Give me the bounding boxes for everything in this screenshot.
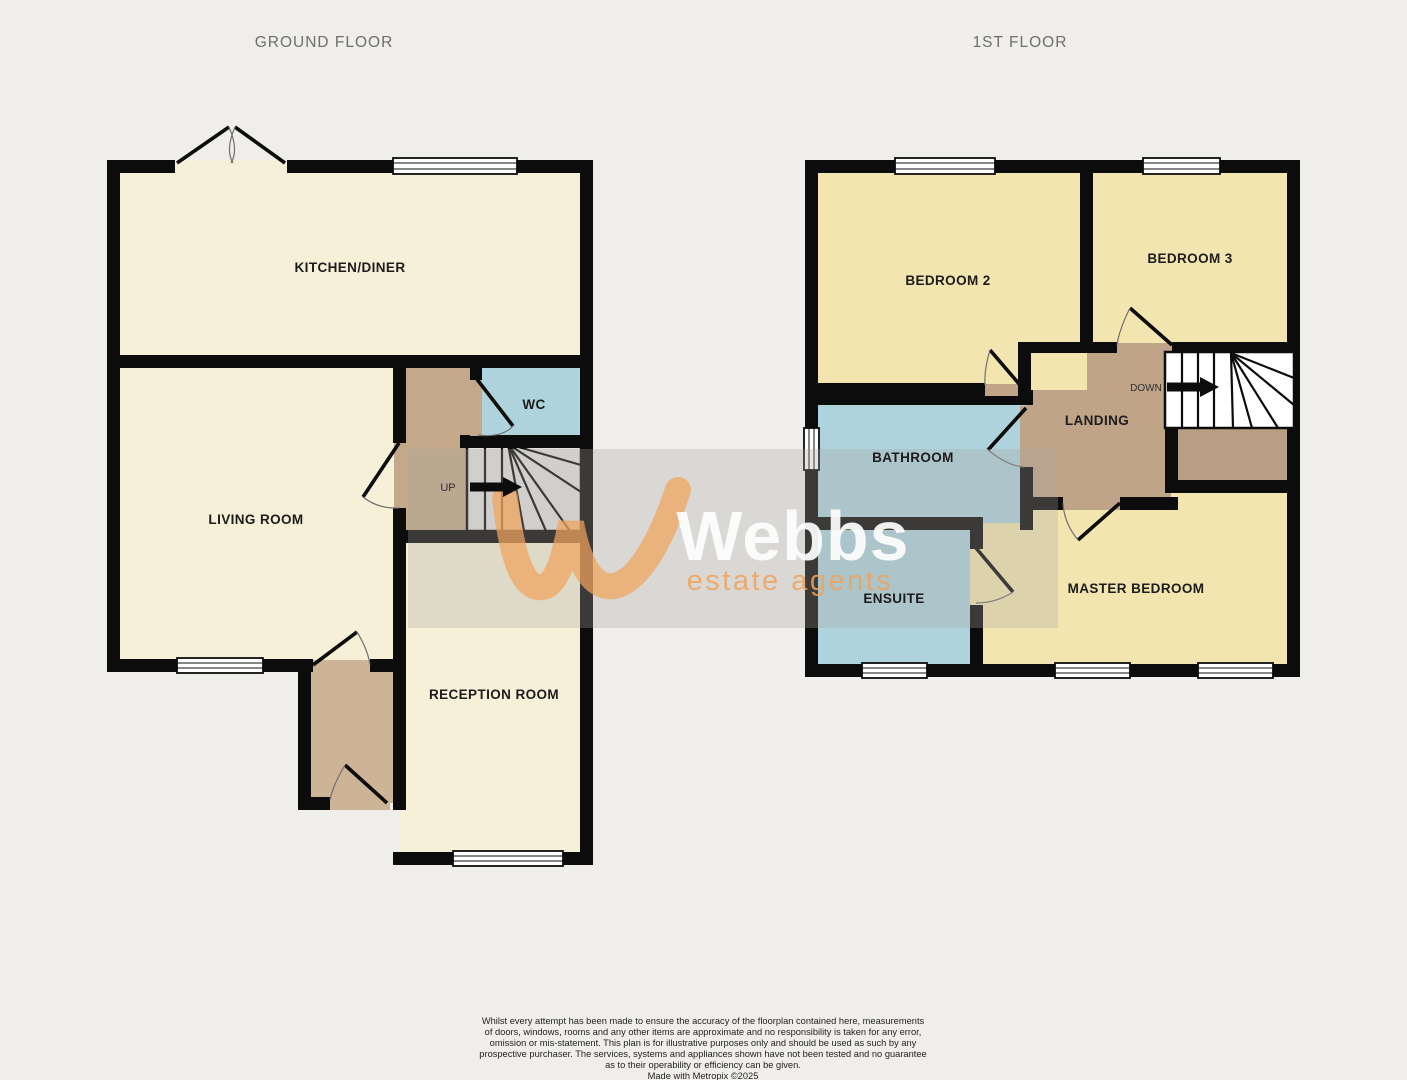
master-window-left — [1055, 663, 1130, 678]
bedroom3-label: BEDROOM 3 — [1147, 251, 1232, 266]
wc-label: WC — [522, 397, 545, 412]
disclaimer-line: omission or mis-statement. This plan is … — [490, 1038, 917, 1048]
webbs-watermark: Webbs estate agents — [408, 449, 1058, 628]
kitchen-window — [393, 158, 517, 174]
living-room-window — [177, 658, 263, 673]
reception-window — [453, 851, 563, 866]
watermark-brand-text: Webbs — [676, 497, 909, 575]
hallway — [399, 362, 474, 442]
floorplan-page: Webbs estate agents GROUND FLOOR 1ST FLO… — [0, 0, 1407, 1080]
disclaimer-line: of doors, windows, rooms and any other i… — [485, 1027, 922, 1037]
watermark-tagline-text: estate agents — [687, 565, 894, 597]
bedroom2-window — [895, 158, 995, 174]
bedroom2-label: BEDROOM 2 — [905, 273, 990, 288]
porch-hall — [300, 660, 400, 803]
floorplan-canvas: Webbs estate agents GROUND FLOOR 1ST FLO… — [0, 0, 1407, 1080]
master-window-right — [1198, 663, 1273, 678]
ensuite-window — [862, 663, 927, 678]
bedroom3-window — [1143, 158, 1220, 174]
kitchen-label: KITCHEN/DINER — [295, 260, 406, 275]
cupboard — [1173, 428, 1291, 483]
master-bedroom-label: MASTER BEDROOM — [1068, 581, 1205, 596]
up-label: UP — [440, 482, 455, 494]
landing-label: LANDING — [1065, 413, 1129, 428]
reception-label: RECEPTION ROOM — [429, 687, 559, 702]
disclaimer-line: prospective purchaser. The services, sys… — [479, 1049, 926, 1059]
down-label: DOWN — [1130, 383, 1162, 394]
ensuite-label: ENSUITE — [863, 591, 924, 606]
kitchen-french-doors — [177, 127, 285, 163]
bathroom-label: BATHROOM — [872, 450, 954, 465]
disclaimer-line: as to their operability or efficiency ca… — [605, 1060, 801, 1070]
living-room-label: LIVING ROOM — [208, 512, 303, 527]
disclaimer: Whilst every attempt has been made to en… — [479, 1016, 926, 1080]
disclaimer-line: Whilst every attempt has been made to en… — [482, 1016, 925, 1026]
ground-floor-title: GROUND FLOOR — [255, 34, 394, 51]
disclaimer-line: Made with Metropix ©2025 — [648, 1071, 759, 1080]
first-floor-title: 1ST FLOOR — [973, 34, 1068, 51]
